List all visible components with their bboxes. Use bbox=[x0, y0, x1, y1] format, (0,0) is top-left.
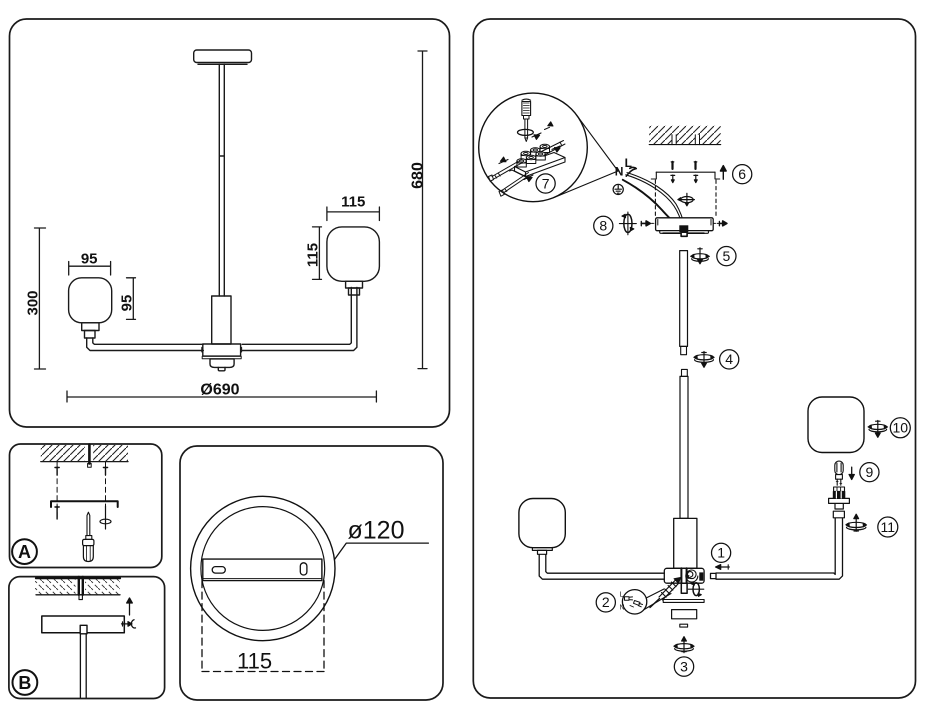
svg-text:3: 3 bbox=[680, 658, 688, 674]
svg-text:115: 115 bbox=[237, 648, 272, 673]
svg-text:1: 1 bbox=[717, 545, 725, 561]
svg-text:95: 95 bbox=[81, 250, 98, 267]
svg-text:Ø690: Ø690 bbox=[200, 382, 239, 399]
svg-text:680: 680 bbox=[410, 162, 427, 189]
svg-text:8: 8 bbox=[599, 218, 607, 234]
svg-text:95: 95 bbox=[118, 295, 135, 312]
svg-text:6: 6 bbox=[738, 166, 746, 182]
svg-text:9: 9 bbox=[866, 464, 874, 480]
svg-text:ø120: ø120 bbox=[348, 517, 405, 545]
svg-text:5: 5 bbox=[723, 248, 731, 264]
svg-text:N: N bbox=[615, 165, 624, 179]
svg-text:11: 11 bbox=[881, 519, 896, 535]
svg-text:10: 10 bbox=[893, 420, 909, 436]
svg-text:4: 4 bbox=[725, 351, 733, 367]
svg-text:7: 7 bbox=[542, 175, 550, 191]
svg-text:A: A bbox=[18, 542, 31, 562]
svg-text:B: B bbox=[18, 673, 31, 693]
svg-text:2: 2 bbox=[602, 594, 610, 610]
svg-text:115: 115 bbox=[304, 243, 321, 267]
svg-text:115: 115 bbox=[341, 193, 365, 210]
svg-text:N: N bbox=[620, 605, 625, 612]
svg-text:300: 300 bbox=[24, 290, 41, 315]
svg-text:L: L bbox=[620, 592, 624, 599]
